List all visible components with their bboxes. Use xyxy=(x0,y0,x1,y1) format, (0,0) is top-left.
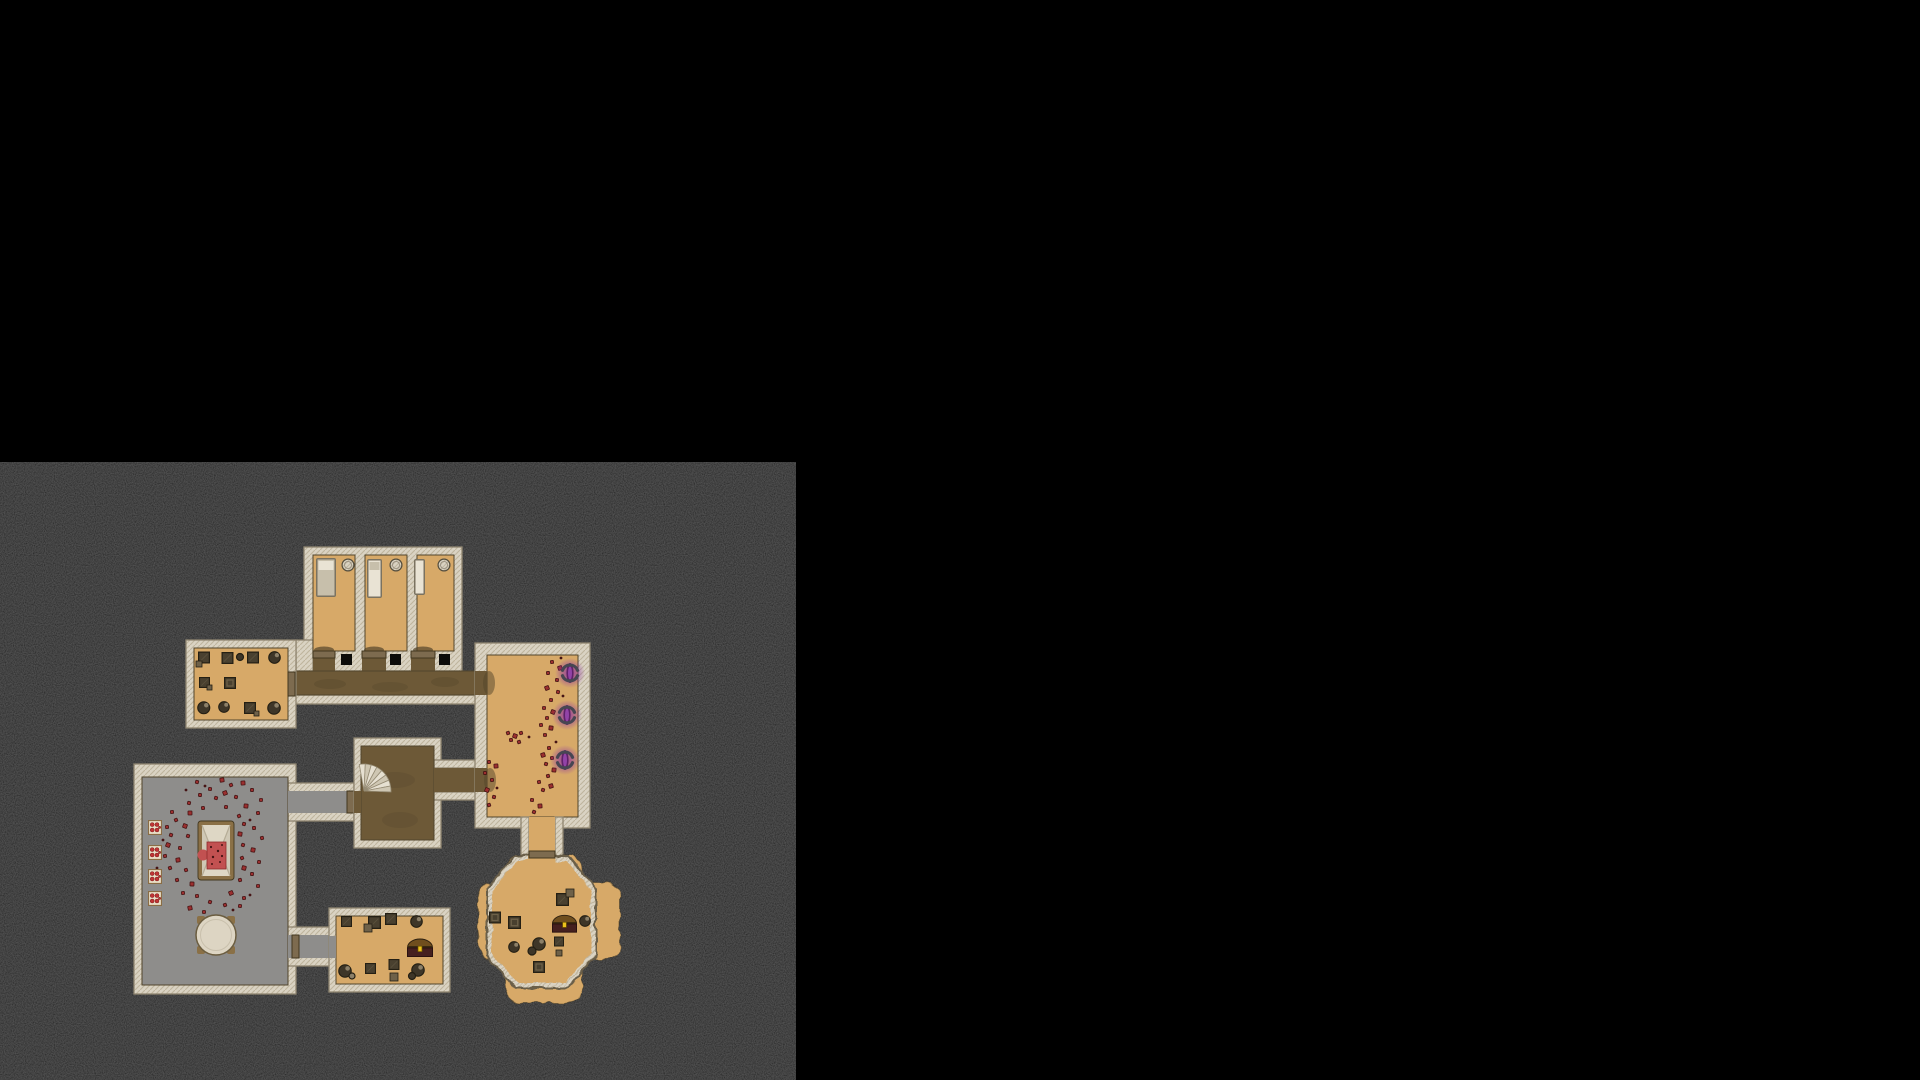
blood-splatter xyxy=(190,882,194,886)
small-pot xyxy=(528,947,536,955)
blood-splatter xyxy=(208,787,211,790)
supply-box xyxy=(149,870,162,884)
blood-splatter xyxy=(229,783,233,787)
blood-splatter xyxy=(163,854,167,858)
purple-brazier xyxy=(550,745,580,775)
blood-splatter xyxy=(494,764,498,768)
bloody-altar xyxy=(198,821,235,880)
barrel xyxy=(390,559,402,571)
blood-splatter xyxy=(170,810,173,813)
small-box xyxy=(364,924,372,932)
blood-splatter xyxy=(249,819,252,822)
cell-door xyxy=(362,651,386,658)
door xyxy=(292,935,299,958)
blood-splatter xyxy=(530,798,533,801)
door xyxy=(529,851,555,858)
blood-splatter xyxy=(547,746,550,749)
blood-splatter xyxy=(184,868,188,872)
blood-splatter xyxy=(176,858,181,863)
treasure-chest xyxy=(408,939,433,957)
blood-splatter xyxy=(249,894,252,897)
cell-door xyxy=(411,651,435,658)
supply-box xyxy=(149,892,162,906)
blood-splatter xyxy=(168,866,172,870)
blood-splatter xyxy=(220,778,225,783)
small-box xyxy=(254,711,259,716)
blood-splatter xyxy=(237,814,241,818)
blood-splatter xyxy=(195,780,199,784)
blood-splatter xyxy=(238,904,241,907)
blood-splatter xyxy=(241,781,245,785)
cell-corridor xyxy=(288,671,487,704)
purple-brazier xyxy=(552,700,582,730)
blood-splatter xyxy=(257,860,260,863)
pot xyxy=(580,916,591,927)
blood-splatter xyxy=(549,784,554,789)
blood-splatter xyxy=(244,804,248,808)
blood-splatter xyxy=(484,787,489,792)
wall-pillar-core xyxy=(390,654,401,665)
blood-splatter xyxy=(250,872,253,875)
dirt-smudge xyxy=(372,682,408,692)
blood-splatter xyxy=(543,733,546,736)
pot xyxy=(509,942,520,953)
blood-splatter xyxy=(546,774,550,778)
pot xyxy=(268,702,280,714)
blood-splatter xyxy=(560,657,563,660)
blood-splatter xyxy=(541,788,545,792)
blood-splatter xyxy=(546,671,549,674)
blood-splatter xyxy=(555,741,558,744)
braziers xyxy=(550,658,585,775)
blood-splatter xyxy=(490,778,493,781)
blood-splatter xyxy=(238,878,242,882)
blood-splatter xyxy=(165,825,168,828)
dungeon-map-canvas xyxy=(0,0,1920,1080)
bed xyxy=(414,559,425,595)
blood-splatter xyxy=(512,733,517,738)
blood-splatter xyxy=(509,738,512,741)
treasure-chest xyxy=(552,915,576,932)
blood-splatter xyxy=(256,884,259,887)
dirt-smudge xyxy=(382,812,418,828)
blood-splatter xyxy=(238,832,243,837)
blood-splatter xyxy=(182,823,187,828)
corridor-wall-stub xyxy=(296,640,313,671)
crate xyxy=(555,937,564,946)
east-corridor-floor xyxy=(288,791,347,813)
storage-room-south xyxy=(329,908,450,992)
blood-splatter xyxy=(204,785,207,788)
blood-splatter xyxy=(165,842,170,847)
blood-splatter xyxy=(242,896,245,899)
blood-splatter xyxy=(240,856,244,860)
blood-splatter xyxy=(517,740,521,744)
bed xyxy=(367,559,382,598)
crate xyxy=(534,962,545,973)
wall-pillar-core xyxy=(341,654,352,665)
barrel xyxy=(438,559,450,571)
blood-splatter xyxy=(251,848,256,853)
blood-splatter xyxy=(195,894,198,897)
supply-box xyxy=(149,821,162,835)
blood-splatter xyxy=(487,803,491,807)
blood-splatter xyxy=(224,805,227,808)
blood-splatter xyxy=(483,771,486,774)
cell-door xyxy=(313,651,335,658)
blood-splatter xyxy=(169,833,173,837)
blood-splatter xyxy=(241,843,245,847)
blood-splatter xyxy=(256,811,259,814)
crate xyxy=(222,653,233,664)
door xyxy=(347,791,354,813)
corridor-south-wall xyxy=(288,695,487,704)
blood-splatter xyxy=(538,804,542,808)
crate xyxy=(386,914,397,925)
crate xyxy=(509,917,521,929)
blood-splatter xyxy=(178,846,181,849)
blood-splatter xyxy=(492,795,496,799)
blood-splatter xyxy=(252,826,255,829)
pot xyxy=(269,652,281,664)
blood-splatter xyxy=(162,839,165,842)
small-box xyxy=(390,973,398,981)
crate xyxy=(342,917,352,927)
round-table xyxy=(196,915,236,955)
pot xyxy=(411,916,423,928)
storage-south-doorway xyxy=(329,936,336,958)
blood-splatter xyxy=(208,900,212,904)
crate xyxy=(389,960,399,970)
blood-splatter xyxy=(549,698,552,701)
barrel xyxy=(342,559,354,571)
jail-cell-block xyxy=(296,547,462,671)
crate xyxy=(248,652,259,663)
small-box xyxy=(207,685,212,690)
blood-splatter xyxy=(187,801,191,805)
wall-pillar-core xyxy=(439,654,450,665)
door xyxy=(288,672,295,696)
blood-splatter xyxy=(223,903,227,907)
blood-splatter xyxy=(232,909,235,912)
blood-splatter xyxy=(556,690,560,694)
blood-splatter xyxy=(537,780,541,784)
blood-splatter xyxy=(541,753,546,758)
blood-splatter xyxy=(496,787,499,790)
blood-splatter xyxy=(532,810,536,814)
blood-splatter xyxy=(185,789,188,792)
blood-splatter xyxy=(198,793,201,796)
blood-splatter xyxy=(487,760,490,763)
blood-splatter xyxy=(242,822,246,826)
small-box xyxy=(566,889,574,897)
small-pot xyxy=(409,973,416,980)
supply-box xyxy=(149,846,162,860)
stair-room-doorway xyxy=(354,791,361,813)
small-box xyxy=(556,950,562,956)
blood-splatter xyxy=(259,798,262,801)
blood-splatter xyxy=(214,796,218,800)
blood-splatter xyxy=(519,731,523,735)
blood-splatter xyxy=(242,866,247,871)
pot xyxy=(198,702,210,714)
blood-splatter xyxy=(260,836,264,840)
blood-splatter xyxy=(222,790,227,795)
dirt-smudge xyxy=(483,671,495,695)
blood-splatter xyxy=(539,723,542,726)
blood-splatter xyxy=(550,660,553,663)
small-pot xyxy=(349,973,355,979)
blood-splatter xyxy=(201,806,204,809)
crate xyxy=(366,964,376,974)
crate xyxy=(490,912,501,923)
small-box xyxy=(196,661,202,667)
blood-splatter xyxy=(202,910,205,913)
blood-splatter xyxy=(544,685,549,690)
blood-splatter xyxy=(234,795,238,799)
stool xyxy=(237,654,244,661)
blood-splatter xyxy=(188,906,193,911)
blood-splatter xyxy=(174,818,178,822)
purple-brazier xyxy=(555,658,585,688)
crate xyxy=(225,678,236,689)
blood-splatter xyxy=(528,736,531,739)
blood-splatter xyxy=(549,726,553,730)
blood-splatter xyxy=(186,834,190,838)
dirt-smudge xyxy=(314,679,346,689)
pot xyxy=(219,702,230,713)
blood-splatter xyxy=(542,706,545,709)
blood-splatter xyxy=(544,762,548,766)
bed xyxy=(316,558,336,597)
blood-splatter xyxy=(545,716,548,719)
blood-splatter xyxy=(181,891,184,894)
storage-room-west xyxy=(186,640,296,728)
blood-splatter xyxy=(175,878,179,882)
blood-splatter xyxy=(188,811,192,815)
blood-splatter xyxy=(228,890,233,895)
dirt-smudge xyxy=(431,677,459,687)
blood-splatter xyxy=(562,695,565,698)
blood-splatter xyxy=(156,867,159,870)
blood-splatter xyxy=(250,788,253,791)
blood-splatter xyxy=(506,731,510,735)
